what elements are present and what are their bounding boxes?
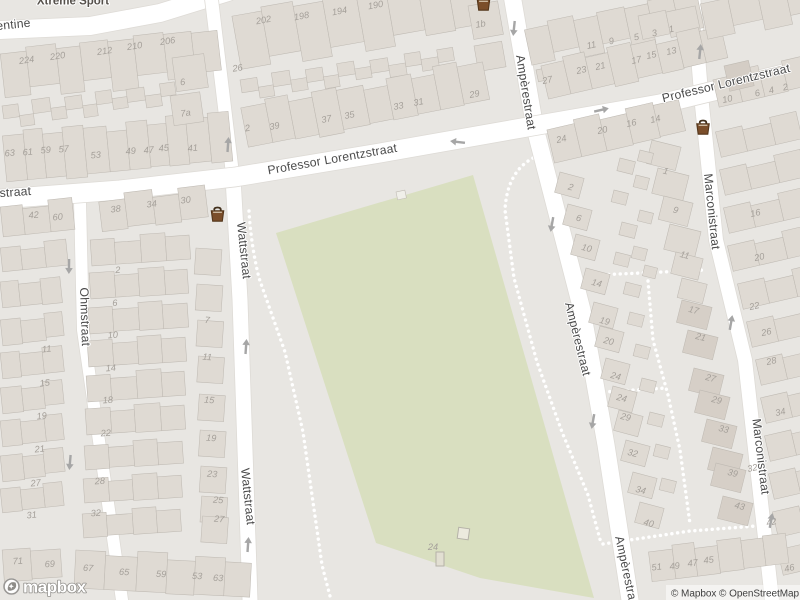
svg-text:11: 11 [41,344,52,355]
svg-text:41: 41 [187,143,198,154]
svg-text:63: 63 [213,573,225,584]
svg-text:31: 31 [26,510,37,521]
svg-text:59: 59 [156,569,167,580]
svg-text:25: 25 [212,495,225,506]
svg-text:39: 39 [268,120,280,132]
svg-text:32: 32 [90,508,101,519]
svg-text:14: 14 [105,363,116,374]
svg-text:34: 34 [146,198,157,209]
svg-text:11: 11 [586,39,597,51]
svg-text:60: 60 [52,211,64,222]
svg-text:29: 29 [467,88,480,100]
svg-text:21: 21 [33,444,45,455]
svg-text:42: 42 [28,210,39,221]
svg-text:65: 65 [119,567,131,578]
svg-text:31: 31 [412,96,424,108]
svg-text:19: 19 [36,411,47,422]
svg-text:67: 67 [83,563,95,574]
svg-text:1b: 1b [475,18,487,30]
svg-text:23: 23 [206,469,219,480]
svg-text:10: 10 [107,330,119,341]
svg-text:7a: 7a [180,107,192,118]
svg-text:27: 27 [29,477,42,488]
svg-text:28: 28 [93,476,106,487]
svg-text:Xtreme Sport: Xtreme Sport [37,0,109,8]
svg-text:53: 53 [192,571,204,582]
svg-text:69: 69 [44,559,55,570]
svg-text:24: 24 [427,542,438,552]
svg-text:27: 27 [213,514,226,525]
svg-text:59: 59 [40,145,51,156]
svg-text:57: 57 [58,144,70,155]
svg-text:18: 18 [102,395,114,406]
svg-text:22: 22 [99,428,111,439]
svg-text:11: 11 [202,352,212,363]
svg-text:47: 47 [143,145,155,156]
svg-text:19: 19 [206,433,217,444]
svg-text:61: 61 [22,147,33,158]
svg-text:Ohmstraat: Ohmstraat [77,287,93,347]
svg-text:51: 51 [651,561,662,572]
svg-text:15: 15 [204,395,216,406]
svg-text:63: 63 [4,148,16,159]
svg-text:© Mapbox © OpenStreetMap: © Mapbox © OpenStreetMap [671,589,800,600]
svg-text:49: 49 [125,146,136,157]
svg-text:2: 2 [114,265,121,275]
svg-text:49: 49 [669,560,680,571]
svg-text:mapbox: mapbox [23,578,87,597]
svg-text:53: 53 [90,150,102,161]
svg-text:15: 15 [39,377,51,388]
svg-text:45: 45 [158,143,170,154]
svg-text:71: 71 [12,556,23,567]
